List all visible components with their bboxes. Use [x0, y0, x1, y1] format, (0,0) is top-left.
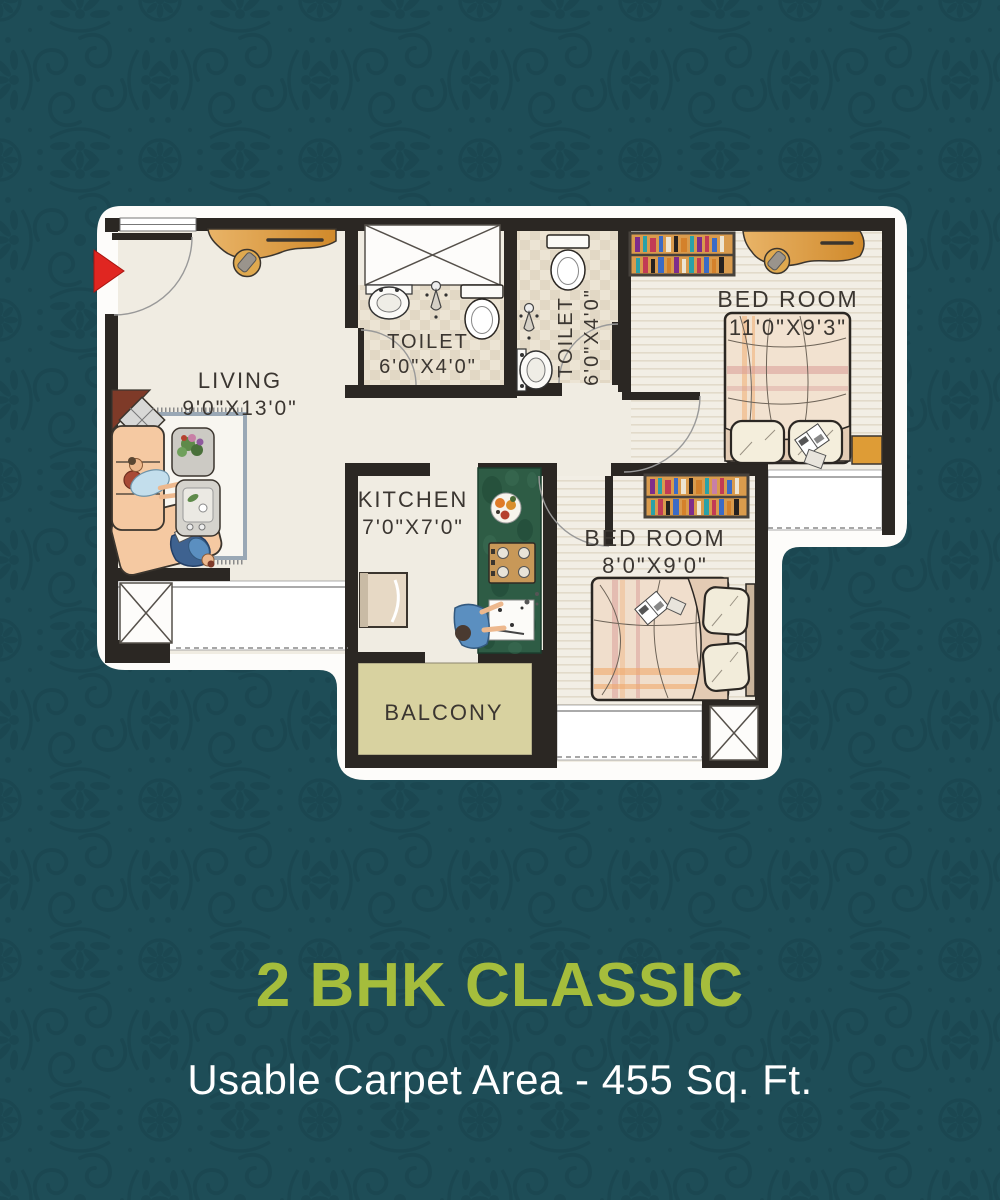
toilet2-dims: 6'0"X4'0": [581, 288, 603, 386]
living-label: LIVING: [198, 368, 282, 393]
bedroom2-dims: 8'0"X9'0": [602, 553, 708, 578]
bedroom1-window: [768, 470, 882, 530]
bookshelf: [645, 475, 748, 517]
duct-top: [365, 225, 500, 285]
page: { "title": "2 BHK CLASSIC", "subtitle": …: [0, 0, 1000, 1200]
nightstand: [852, 436, 882, 464]
toilet1-label: TOILET: [387, 331, 469, 353]
fridge: [360, 573, 407, 627]
balcony-label: BALCONY: [384, 700, 503, 725]
kitchen-label: KITCHEN: [358, 487, 469, 512]
stove-icon: [489, 543, 535, 583]
bookshelf: [630, 233, 734, 275]
plan-title: 2 BHK CLASSIC: [0, 950, 1000, 1021]
bedroom2-window: [557, 705, 702, 760]
top-window: [120, 218, 196, 231]
bedroom1-dims: 11'0"X9'3": [729, 315, 847, 340]
toilet1-dims: 6'0"X4'0": [379, 356, 477, 378]
duct-bedroom2: [710, 706, 758, 760]
bedroom1-label: BED ROOM: [717, 286, 858, 312]
living-dims: 9'0"X13'0": [182, 397, 297, 420]
coffee-table: [172, 428, 220, 536]
bedroom2-label: BED ROOM: [584, 525, 725, 551]
duct-living: [120, 583, 172, 643]
kitchen-dims: 7'0"X7'0": [362, 516, 464, 539]
carpet-area-subtitle: Usable Carpet Area - 455 Sq. Ft.: [0, 1056, 1000, 1104]
washbasin-icon: [517, 349, 552, 391]
fruit-plate-icon: [491, 493, 521, 523]
toilet2-label: TOILET: [555, 296, 577, 378]
